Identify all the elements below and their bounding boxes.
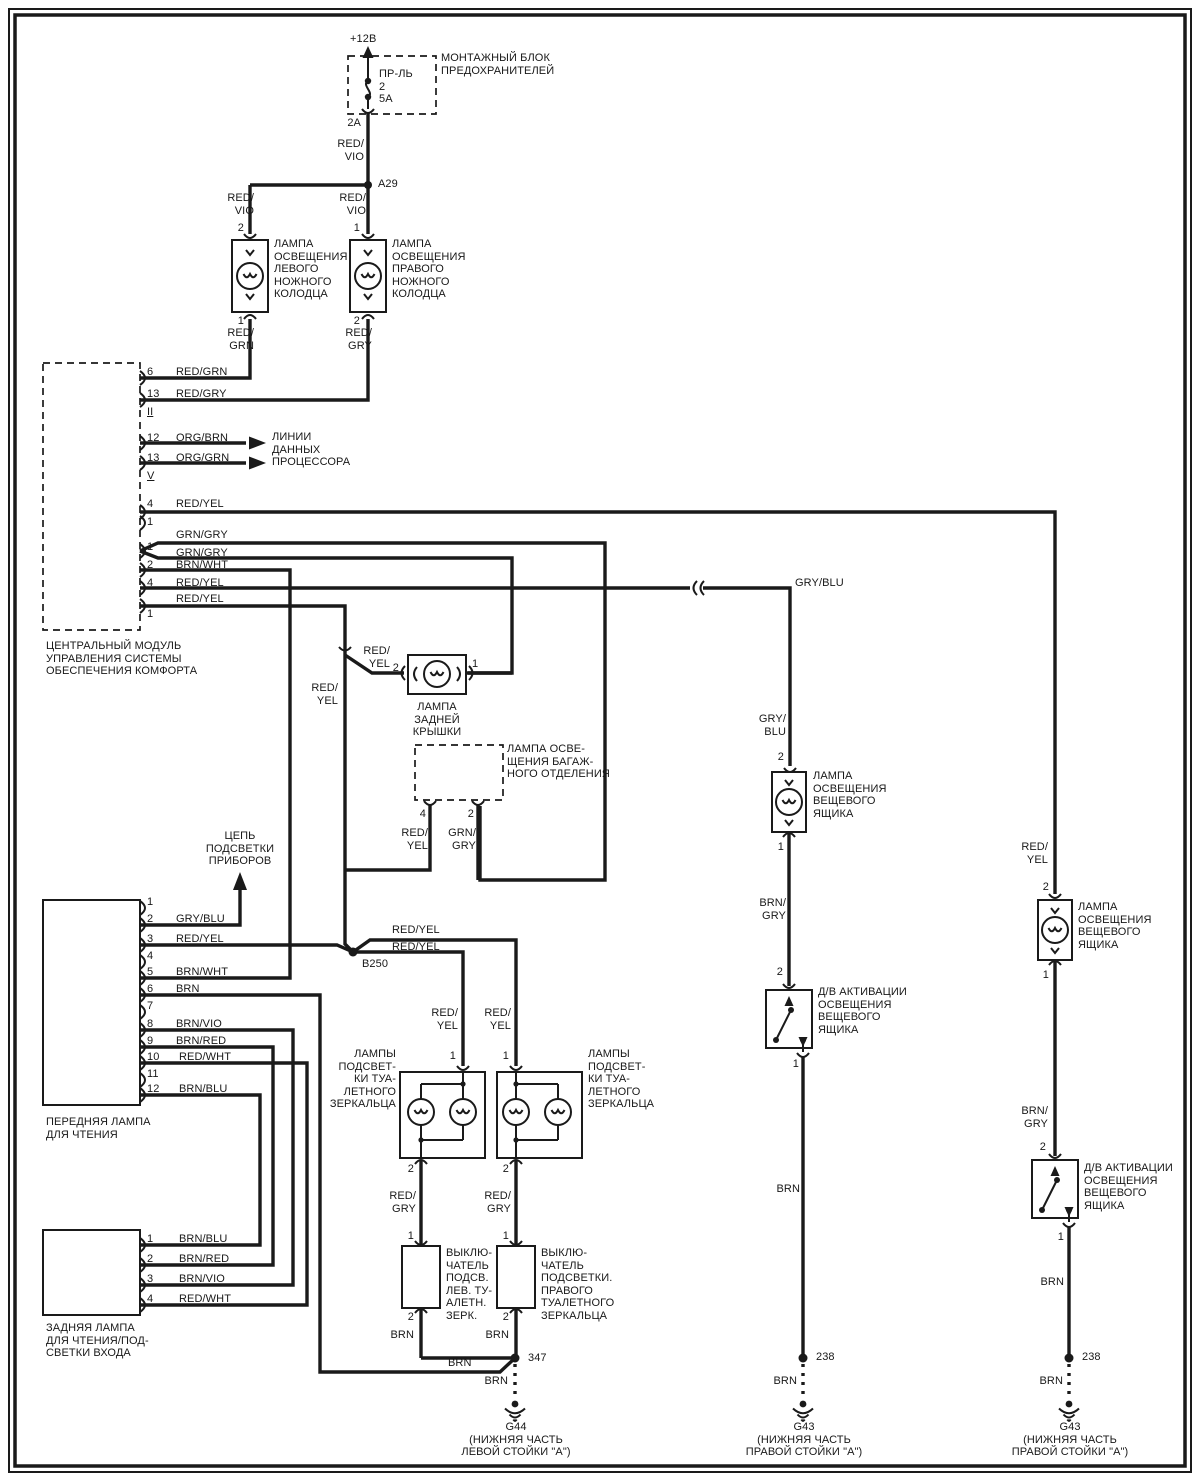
glovebox-lamp-2-label: ЛАМПА ОСВЕЩЕНИЯ ВЕЩЕВОГО ЯЩИКА: [1078, 901, 1152, 951]
wire-org-grn: ORG/GRN: [176, 452, 229, 465]
trunk-lamp-label: ЛАМПА ОСВЕ- ЩЕНИЯ БАГАЖ- НОГО ОТДЕЛЕНИЯ: [507, 743, 610, 781]
wire-brn-wht-mod: BRN/WHT: [176, 559, 228, 572]
fuse-pin: 2A: [347, 117, 361, 130]
wiring-diagram-page: +12ВМОНТАЖНЫЙ БЛОК ПРЕДОХРАНИТЕЛЕЙПР-ЛЬ …: [0, 0, 1200, 1481]
wire-red-grn: RED/ GRN: [227, 327, 254, 352]
ground-g44-label: G44 (НИЖНЯЯ ЧАСТЬ ЛЕВОЙ СТОЙКИ "А"): [461, 1421, 570, 1459]
front-lamp-pin-3: 3: [147, 933, 153, 946]
module-pin-6: 6: [147, 366, 153, 379]
front-lamp-pin-5: 5: [147, 966, 153, 979]
module-conn-v: V: [147, 470, 154, 483]
wire-brn-red-rear: BRN/RED: [179, 1253, 229, 1266]
left-footwell-lamp-label: ЛАМПА ОСВЕЩЕНИЯ ЛЕВОГО НОЖНОГО КОЛОДЦА: [274, 238, 348, 301]
rear-reading-lamp-label: ЗАДНЯЯ ЛАМПА ДЛЯ ЧТЕНИЯ/ПОД- СВЕТКИ ВХОД…: [46, 1322, 149, 1360]
front-lamp-pin-7: 7: [147, 1000, 153, 1013]
wire-brn-g44: BRN: [484, 1375, 508, 1388]
wire-red-yel-4a: RED/YEL: [176, 498, 224, 511]
comfort-module-label: ЦЕНТРАЛЬНЫЙ МОДУЛЬ УПРАВЛЕНИЯ СИСТЕМЫ ОБ…: [46, 640, 197, 678]
splice-238-right: 238: [1082, 1351, 1101, 1364]
wire-red-yel-vanity-right: RED/ YEL: [484, 1007, 511, 1032]
wire-red-yel-4b: RED/YEL: [176, 577, 224, 590]
glovebox-lamp-2-pin-1: 1: [1043, 969, 1049, 982]
glovebox-switch-1-pin-2: 2: [777, 966, 783, 979]
pin-right-lamp-top: 1: [354, 222, 360, 235]
pin-left-lamp-bottom: 1: [238, 315, 244, 328]
instrument-circuit-label: ЦЕПЬ ПОДСВЕТКИ ПРИБОРОВ: [206, 830, 274, 868]
wire-red-vio-right: RED/ VIO: [339, 192, 366, 217]
ground-g43-right-label: G43 (НИЖНЯЯ ЧАСТЬ ПРАВОЙ СТОЙКИ "А"): [1012, 1421, 1129, 1459]
tail-lamp-label: ЛАМПА ЗАДНЕЙ КРЫШКИ: [413, 701, 461, 739]
front-lamp-pin-6: 6: [147, 983, 153, 996]
glovebox-switch-2-label: Д/В АКТИВАЦИИ ОСВЕЩЕНИЯ ВЕЩЕВОГО ЯЩИКА: [1084, 1162, 1173, 1212]
wire-red-yel-down: RED/ YEL: [311, 682, 338, 707]
glovebox-switch-2-pin-1: 1: [1058, 1231, 1064, 1244]
wire-red-yel-b2: RED/YEL: [392, 941, 440, 954]
wire-red-gry-right: RED/ GRY: [484, 1190, 511, 1215]
wire-gry-blu-front: GRY/BLU: [176, 913, 225, 926]
rear-lamp-pin-3: 3: [147, 1273, 153, 1286]
glovebox-lamp-1-pin-1: 1: [778, 841, 784, 854]
module-pin-1b: 1: [147, 541, 153, 554]
glovebox-lamp-1-label: ЛАМПА ОСВЕЩЕНИЯ ВЕЩЕВОГО ЯЩИКА: [813, 770, 887, 820]
wire-brn-feeder: BRN: [448, 1357, 472, 1370]
module-pin-2b: 2: [147, 559, 153, 572]
switch-left-pin-2: 2: [408, 1311, 414, 1324]
wire-red-yel-trunk: RED/ YEL: [401, 827, 428, 852]
module-pin-13a: 13: [147, 388, 159, 401]
splice-347: 347: [528, 1352, 547, 1365]
vanity-right-label: ЛАМПЫ ПОДСВЕТ- КИ ТУА- ЛЕТНОГО ЗЕРКАЛЬЦА: [588, 1048, 654, 1111]
left-mirror-switch-label: ВЫКЛЮ- ЧАТЕЛЬ ПОДСВ. ЛЕВ. ТУ- АЛЕТН. ЗЕР…: [446, 1247, 492, 1322]
wire-red-wht-front: RED/WHT: [179, 1051, 231, 1064]
wire-brn-gry-right: BRN/ GRY: [1021, 1105, 1048, 1130]
wire-red-yel-b1: RED/YEL: [392, 924, 440, 937]
front-lamp-pin-8: 8: [147, 1018, 153, 1031]
right-footwell-lamp-label: ЛАМПА ОСВЕЩЕНИЯ ПРАВОГО НОЖНОГО КОЛОДЦА: [392, 238, 466, 301]
vanity-right-pin-1: 1: [503, 1050, 509, 1063]
label-layer: +12ВМОНТАЖНЫЙ БЛОК ПРЕДОХРАНИТЕЛЕЙПР-ЛЬ …: [0, 0, 1200, 1481]
splice-a29: A29: [378, 178, 398, 191]
front-lamp-pin-4: 4: [147, 950, 153, 963]
wire-brn-vio-front: BRN/VIO: [176, 1018, 222, 1031]
pin-tail-lamp-1: 1: [472, 658, 478, 671]
glovebox-lamp-2-pin-2: 2: [1043, 881, 1049, 894]
rear-lamp-pin-2: 2: [147, 1253, 153, 1266]
vanity-left-label: ЛАМПЫ ПОДСВЕТ- КИ ТУА- ЛЕТНОГО ЗЕРКАЛЬЦА: [330, 1048, 396, 1111]
wire-grn-gry-2: GRN/GRY: [176, 547, 228, 560]
wire-brn-switch-left: BRN: [390, 1329, 414, 1342]
glovebox-lamp-1-pin-2: 2: [778, 751, 784, 764]
wire-red-gry-lamp: RED/ GRY: [345, 327, 372, 352]
switch-left-pin-1: 1: [408, 1230, 414, 1243]
fuse-name: ПР-ЛЬ 2 5А: [379, 68, 413, 106]
wire-red-vio-top: RED/ VIO: [337, 138, 364, 163]
wire-red-yel-vanity-left: RED/ YEL: [431, 1007, 458, 1032]
glovebox-switch-1-pin-1: 1: [793, 1058, 799, 1071]
wire-red-yel-1c: RED/YEL: [176, 593, 224, 606]
processor-data-lines-label: ЛИНИИ ДАННЫХ ПРОЦЕССОРА: [272, 431, 350, 469]
wire-red-yel-rightcol: RED/ YEL: [1021, 841, 1048, 866]
ground-g43-mid-label: G43 (НИЖНЯЯ ЧАСТЬ ПРАВОЙ СТОЙКИ "А"): [746, 1421, 863, 1459]
front-lamp-pin-1: 1: [147, 896, 153, 909]
wire-brn-mid: BRN: [776, 1183, 800, 1196]
wire-red-gry-mod: RED/GRY: [176, 388, 227, 401]
module-pin-1a: 1: [147, 516, 153, 529]
wire-brn-wht-front: BRN/WHT: [176, 966, 228, 979]
glovebox-switch-1-label: Д/В АКТИВАЦИИ ОСВЕЩЕНИЯ ВЕЩЕВОГО ЯЩИКА: [818, 986, 907, 1036]
front-lamp-pin-9: 9: [147, 1035, 153, 1048]
pin-trunk-2: 2: [468, 808, 474, 821]
wire-red-wht-rear: RED/WHT: [179, 1293, 231, 1306]
wire-brn-front: BRN: [176, 983, 200, 996]
module-pin-1c: 1: [147, 608, 153, 621]
splice-b250: B250: [362, 958, 388, 971]
splice-238-mid: 238: [816, 1351, 835, 1364]
wire-brn-vio-rear: BRN/VIO: [179, 1273, 225, 1286]
wire-gry-blu-mid: GRY/ BLU: [759, 713, 786, 738]
module-pin-4a: 4: [147, 498, 153, 511]
wire-gry-blu: GRY/BLU: [795, 577, 844, 590]
wire-brn-blu-front: BRN/BLU: [179, 1083, 227, 1096]
front-lamp-pin-11: 11: [147, 1068, 159, 1081]
wire-brn-right: BRN: [1040, 1276, 1064, 1289]
wire-brn-switch-right: BRN: [485, 1329, 509, 1342]
wire-grn-gry-1: GRN/GRY: [176, 529, 228, 542]
wire-red-grn-mod: RED/GRN: [176, 366, 227, 379]
front-lamp-pin-10: 10: [147, 1051, 159, 1064]
wire-brn-right-gnd: BRN: [1039, 1375, 1063, 1388]
glovebox-switch-2-pin-2: 2: [1040, 1141, 1046, 1154]
wire-grn-gry-trunk: GRN/ GRY: [448, 827, 476, 852]
front-lamp-pin-2: 2: [147, 913, 153, 926]
wire-org-brn: ORG/BRN: [176, 432, 228, 445]
vanity-left-pin-2: 2: [408, 1163, 414, 1176]
wire-red-yel-front: RED/YEL: [176, 933, 224, 946]
pin-right-lamp-bottom: 2: [354, 315, 360, 328]
pin-left-lamp-top: 2: [238, 222, 244, 235]
vanity-right-pin-2: 2: [503, 1163, 509, 1176]
switch-right-pin-2: 2: [503, 1311, 509, 1324]
wire-red-vio-left: RED/ VIO: [227, 192, 254, 217]
pin-trunk-4: 4: [420, 808, 426, 821]
module-pin-12: 12: [147, 432, 159, 445]
wire-brn-blu-rear: BRN/BLU: [179, 1233, 227, 1246]
wire-brn-mid-gnd: BRN: [773, 1375, 797, 1388]
front-reading-lamp-label: ПЕРЕДНЯЯ ЛАМПА ДЛЯ ЧТЕНИЯ: [46, 1116, 151, 1141]
wire-brn-gry-mid: BRN/ GRY: [759, 897, 786, 922]
front-lamp-pin-12: 12: [147, 1083, 159, 1096]
wire-brn-red-front: BRN/RED: [176, 1035, 226, 1048]
rear-lamp-pin-4: 4: [147, 1293, 153, 1306]
rear-lamp-pin-1: 1: [147, 1233, 153, 1246]
fuse-box-title: МОНТАЖНЫЙ БЛОК ПРЕДОХРАНИТЕЛЕЙ: [441, 52, 554, 77]
supply-voltage: +12В: [350, 33, 376, 46]
right-mirror-switch-label: ВЫКЛЮ- ЧАТЕЛЬ ПОДСВЕТКИ. ПРАВОГО ТУАЛЕТН…: [541, 1247, 614, 1322]
vanity-left-pin-1: 1: [450, 1050, 456, 1063]
switch-right-pin-1: 1: [503, 1230, 509, 1243]
wire-red-yel-tail: RED/ YEL: [363, 645, 390, 670]
module-conn-ii: II: [147, 406, 153, 419]
wire-red-gry-left: RED/ GRY: [389, 1190, 416, 1215]
module-pin-13b: 13: [147, 452, 159, 465]
module-pin-4b: 4: [147, 577, 153, 590]
pin-tail-lamp-2: 2: [393, 662, 399, 675]
